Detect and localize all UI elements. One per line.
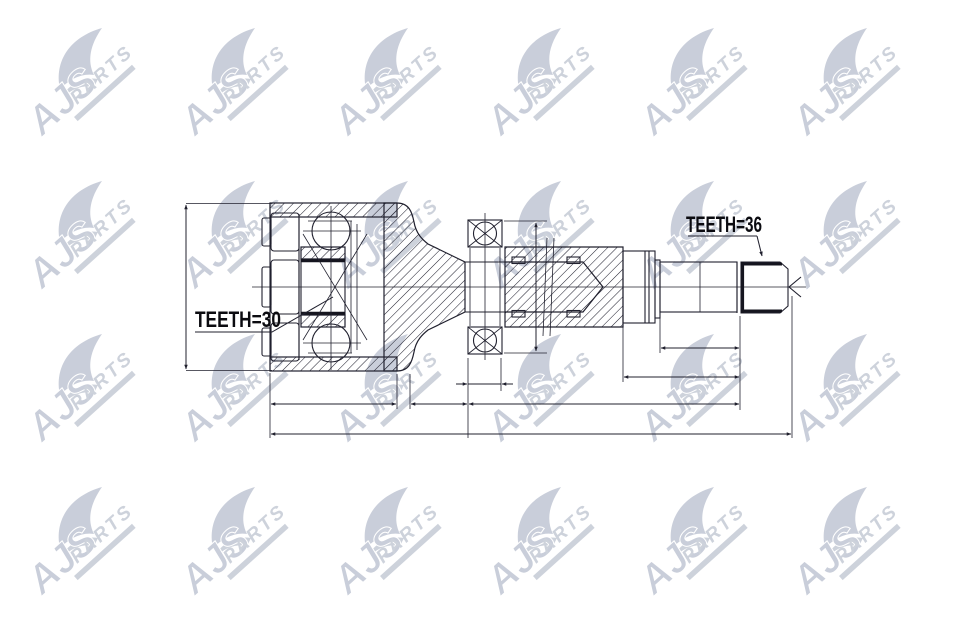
spline-end	[741, 262, 788, 313]
technical-drawing-canvas: AJS PARTS	[0, 0, 960, 640]
housing-neck-cone	[384, 203, 465, 371]
teeth-inner-label: TEETH=30	[195, 307, 281, 332]
housing-top-wall	[270, 203, 397, 217]
teeth-outer-leader	[757, 236, 762, 256]
catalog-part-image: AJS PARTS	[0, 0, 960, 640]
boot-sleeve	[505, 247, 623, 327]
housing-bottom-wall	[270, 357, 397, 371]
teeth-outer-label: TEETH=36	[686, 212, 762, 237]
watermark-layer	[18, 28, 903, 603]
